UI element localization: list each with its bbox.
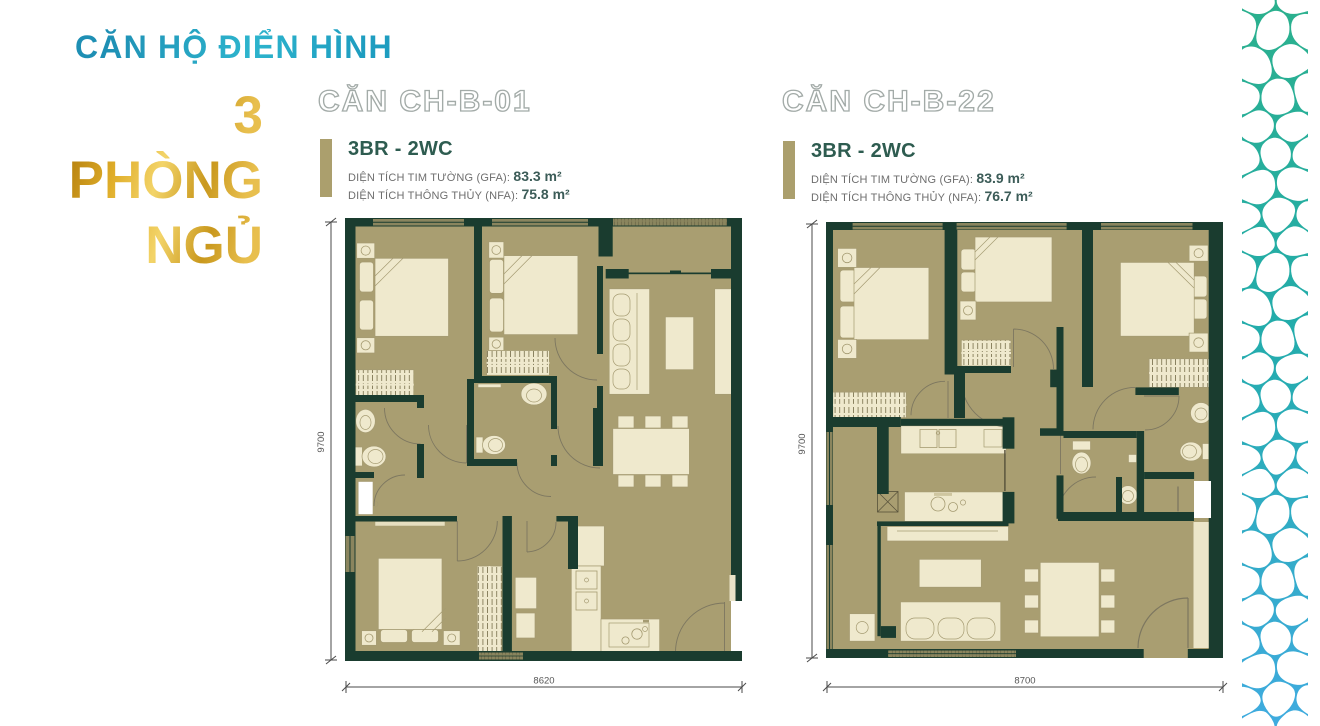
svg-text:9700: 9700 (797, 433, 808, 454)
svg-text:8700: 8700 (1014, 676, 1035, 687)
svg-text:9700: 9700 (316, 431, 327, 452)
svg-text:8620: 8620 (533, 676, 554, 687)
